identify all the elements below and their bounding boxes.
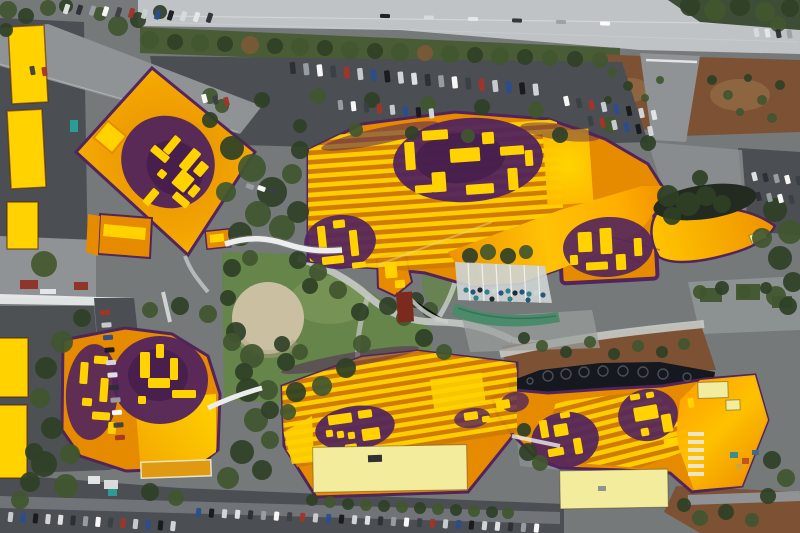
patio-table: [470, 289, 475, 294]
aerial-image: [0, 0, 800, 533]
tree: [302, 278, 318, 294]
car: [170, 521, 176, 531]
car: [363, 102, 369, 112]
car: [556, 20, 566, 24]
tree: [692, 510, 708, 526]
tree: [560, 346, 572, 358]
tree: [715, 281, 729, 295]
rooftop-unit: [570, 255, 579, 265]
car: [248, 510, 254, 519]
car: [468, 17, 478, 21]
tree: [18, 8, 34, 24]
patio-table: [507, 296, 512, 301]
patio-table: [512, 290, 517, 295]
roof-slat: [688, 464, 704, 468]
rooftop-unit: [348, 432, 356, 440]
pale-roof-section: [313, 445, 468, 493]
tree: [723, 90, 733, 100]
small-feature: [74, 282, 88, 290]
tree: [291, 38, 309, 56]
tree: [360, 499, 372, 511]
car: [404, 517, 410, 526]
rooftop-unit: [599, 228, 612, 255]
rooftop-unit: [450, 147, 481, 163]
rooftop-unit: [79, 362, 89, 385]
car: [45, 514, 51, 524]
tree: [744, 74, 752, 82]
tree: [707, 75, 717, 85]
car: [145, 519, 151, 529]
southeast-path: [688, 496, 800, 500]
roof-slat: [688, 448, 704, 452]
patio-table: [484, 289, 489, 294]
car: [378, 516, 384, 525]
tree: [752, 228, 772, 248]
tree: [678, 338, 690, 350]
tree: [450, 504, 462, 516]
rooftop-unit: [500, 145, 525, 156]
rooftop-unit: [156, 344, 164, 358]
tree: [245, 201, 271, 227]
rooftop-unit: [337, 431, 345, 439]
tree: [441, 45, 459, 63]
tree: [532, 455, 548, 471]
tree: [191, 34, 209, 52]
car: [7, 512, 13, 522]
tree: [108, 16, 128, 36]
patio-table: [525, 297, 530, 302]
satellite-map-view[interactable]: [0, 0, 800, 533]
rooftop-unit: [524, 150, 533, 167]
tree: [230, 440, 254, 464]
tree: [641, 94, 649, 102]
car: [196, 508, 202, 517]
rooftop-unit: [99, 378, 109, 402]
tree: [217, 36, 233, 52]
car: [339, 514, 345, 523]
tree: [518, 332, 530, 344]
tree: [171, 297, 189, 315]
rooftop-unit: [482, 132, 495, 145]
car: [82, 516, 88, 526]
tree: [640, 135, 656, 151]
tree: [254, 92, 270, 108]
rooftop-unit: [415, 184, 434, 193]
tree: [491, 47, 509, 65]
tree: [396, 501, 408, 513]
tree: [767, 113, 777, 123]
tree: [474, 99, 490, 115]
tree: [379, 297, 397, 315]
tree: [216, 182, 236, 202]
solar-roof-strip: [7, 109, 46, 189]
rooftop-unit: [634, 238, 643, 256]
tree: [607, 67, 617, 77]
tree: [267, 38, 283, 54]
rooftop-unit: [431, 172, 446, 193]
tree: [468, 505, 480, 517]
car: [95, 517, 101, 527]
car: [326, 514, 332, 523]
small-feature: [108, 489, 117, 496]
tree: [775, 80, 785, 90]
car: [389, 105, 395, 115]
tree: [280, 404, 296, 420]
small-feature: [40, 289, 56, 294]
tree: [220, 290, 236, 306]
tree: [35, 357, 57, 379]
car: [300, 513, 306, 522]
rooftop-unit: [172, 390, 196, 398]
tree: [763, 451, 781, 469]
small-feature: [598, 486, 606, 491]
tree: [40, 0, 56, 16]
tree: [500, 248, 516, 264]
car: [222, 509, 228, 518]
rooftop-unit: [466, 183, 495, 195]
patio-table: [473, 295, 478, 300]
car: [521, 523, 527, 532]
tree: [415, 329, 433, 347]
rooftop-unit: [640, 427, 649, 436]
car: [482, 521, 488, 530]
tree: [692, 170, 708, 186]
tree: [737, 285, 751, 299]
rooftop-unit: [553, 423, 569, 437]
tree: [41, 417, 63, 439]
tree: [632, 340, 644, 352]
diamond-east-hut-roof: [210, 233, 225, 242]
car: [376, 103, 382, 113]
tree: [405, 126, 419, 140]
car: [274, 511, 280, 520]
tree: [367, 43, 383, 59]
tree: [324, 496, 336, 508]
tree: [141, 483, 159, 501]
rooftop-unit: [82, 398, 93, 407]
tree: [517, 423, 531, 437]
tree: [432, 503, 444, 515]
tree: [167, 34, 183, 50]
tree: [745, 513, 759, 527]
tree: [736, 108, 744, 116]
patio-table: [540, 292, 545, 297]
rooftop-unit: [395, 280, 406, 289]
car: [115, 435, 125, 441]
tree: [310, 88, 326, 104]
car: [512, 18, 522, 22]
tree: [757, 95, 767, 105]
tree: [486, 506, 498, 518]
solar-roof-strip: [0, 405, 27, 478]
tree: [592, 52, 608, 68]
tree: [417, 45, 433, 61]
tree: [261, 431, 279, 449]
tree: [657, 185, 679, 207]
car: [443, 519, 449, 528]
small-feature: [20, 280, 38, 289]
tree: [436, 344, 452, 360]
tree: [623, 81, 633, 91]
tree: [252, 460, 272, 480]
car: [157, 520, 163, 530]
car: [534, 523, 540, 532]
tree: [567, 51, 583, 67]
tree: [656, 76, 664, 84]
tree: [414, 502, 426, 514]
tree: [341, 41, 359, 59]
patio-table: [491, 288, 496, 293]
tree: [768, 246, 792, 270]
small-feature: [368, 455, 382, 462]
tree: [467, 47, 483, 63]
car: [337, 100, 343, 110]
car: [428, 108, 434, 118]
rooftop-unit: [507, 168, 519, 191]
pale-roof-section: [560, 469, 669, 509]
car: [103, 335, 113, 341]
car: [456, 520, 462, 529]
car: [70, 515, 76, 525]
tree: [519, 245, 533, 259]
tree: [462, 248, 478, 264]
tree: [31, 451, 57, 477]
tree: [704, 0, 726, 21]
tree: [60, 444, 80, 464]
tree: [312, 376, 332, 396]
small-feature: [88, 476, 100, 484]
tree: [517, 49, 533, 65]
car: [313, 513, 319, 522]
tree: [608, 348, 620, 360]
tree: [287, 201, 309, 223]
rooftop-unit: [586, 261, 608, 270]
car: [113, 422, 123, 428]
rooftop-unit: [577, 232, 592, 253]
car: [106, 360, 116, 366]
rooftop-unit: [148, 378, 170, 388]
car: [495, 522, 501, 531]
roof-slat: [688, 432, 704, 436]
small-feature: [104, 480, 118, 489]
car: [110, 397, 120, 403]
tree: [73, 309, 91, 327]
tree: [349, 123, 363, 137]
tree: [480, 244, 496, 260]
pale-roof-section: [698, 381, 729, 398]
solar-roof-strip: [8, 25, 48, 104]
car: [402, 106, 408, 116]
tree: [223, 333, 241, 351]
tree: [677, 498, 691, 512]
tree: [274, 336, 290, 352]
roof-slat: [688, 472, 704, 476]
tree: [528, 102, 544, 118]
patio-table: [463, 287, 468, 292]
tree: [391, 43, 409, 61]
car: [209, 508, 215, 517]
car: [508, 522, 514, 531]
rooftop-unit: [482, 415, 491, 422]
rooftop-unit: [326, 430, 334, 438]
car: [101, 322, 111, 328]
tree: [286, 382, 306, 402]
car: [235, 510, 241, 519]
rooftop-unit: [361, 427, 380, 441]
small-feature: [730, 452, 738, 458]
rooftop-unit: [384, 262, 397, 279]
tree: [777, 469, 795, 487]
car: [100, 310, 110, 316]
car: [132, 519, 138, 529]
tree: [656, 346, 668, 358]
rooftop-unit: [138, 396, 146, 404]
tree: [238, 154, 266, 182]
tree: [202, 112, 218, 128]
roof-slat: [688, 456, 704, 460]
car: [57, 515, 63, 525]
tree: [760, 282, 772, 294]
small-feature: [742, 458, 749, 464]
small-feature: [70, 120, 78, 132]
tree: [317, 40, 333, 56]
tree: [329, 281, 347, 299]
rooftop-unit: [140, 352, 150, 378]
tree: [54, 474, 78, 498]
tree: [584, 336, 596, 348]
tree: [713, 195, 731, 213]
tree: [223, 259, 241, 277]
tree: [718, 504, 734, 520]
tree: [293, 119, 307, 133]
roof-slat: [688, 440, 704, 444]
patio-table: [533, 290, 538, 295]
car: [112, 410, 122, 416]
patio-table: [519, 289, 524, 294]
tree: [30, 388, 50, 408]
tree: [536, 340, 548, 352]
car: [415, 107, 421, 117]
car: [350, 101, 356, 111]
tree: [235, 363, 253, 381]
car: [261, 511, 267, 520]
tree: [220, 136, 244, 160]
patio-table: [489, 296, 494, 301]
tree: [292, 344, 308, 360]
tree: [306, 494, 318, 506]
car: [120, 518, 126, 528]
tree: [282, 164, 302, 184]
rooftop-unit: [404, 142, 416, 171]
tree: [289, 251, 307, 269]
patio-table: [526, 291, 531, 296]
rooftop-unit: [333, 219, 346, 228]
rooftop-unit: [170, 358, 178, 380]
tree: [351, 303, 369, 321]
car: [469, 520, 475, 529]
patio-table: [505, 288, 510, 293]
tree: [168, 490, 184, 506]
car: [430, 519, 436, 528]
patio-table: [498, 290, 503, 295]
rooftop-unit: [92, 411, 111, 420]
solar-roof-strip: [0, 338, 28, 397]
tree: [241, 36, 259, 54]
patio-table: [477, 287, 482, 292]
car: [424, 15, 434, 19]
tree: [242, 250, 258, 266]
car: [20, 512, 26, 522]
tree: [461, 129, 475, 143]
car: [109, 385, 119, 391]
car: [104, 347, 114, 353]
tree: [217, 467, 239, 489]
car: [391, 517, 397, 526]
tree: [779, 297, 797, 315]
tree: [277, 353, 295, 371]
pale-roof-section: [726, 400, 740, 410]
tree: [261, 401, 279, 419]
tree: [291, 141, 309, 159]
tree: [336, 358, 356, 378]
southwest-building-annex: [141, 460, 212, 478]
car: [417, 518, 423, 527]
car: [600, 21, 610, 25]
tree: [353, 335, 371, 353]
tree: [51, 331, 73, 353]
small-feature: [752, 450, 759, 455]
diamond-annex-wedge: [86, 214, 100, 256]
tree: [142, 302, 158, 318]
tree: [342, 498, 354, 510]
tree: [141, 31, 159, 49]
car: [107, 372, 117, 378]
rooftop-unit: [616, 254, 627, 271]
small-feature: [736, 464, 742, 469]
car: [352, 515, 358, 524]
tree: [760, 488, 776, 504]
red-structure: [396, 291, 414, 322]
loop-road-island: [31, 251, 57, 277]
car: [32, 513, 38, 523]
tree: [20, 472, 40, 492]
solar-roof-strip: [7, 202, 38, 249]
tree: [693, 285, 707, 299]
mound-highlight: [710, 79, 770, 111]
car: [287, 512, 293, 521]
tree: [199, 305, 217, 323]
car: [380, 14, 390, 18]
tree: [378, 500, 390, 512]
car: [107, 517, 113, 527]
tree: [696, 186, 716, 206]
rooftop-unit: [422, 129, 449, 141]
tree: [542, 50, 558, 66]
tree: [663, 207, 681, 225]
tree: [11, 491, 29, 509]
tree: [552, 127, 568, 143]
car: [365, 516, 371, 525]
tree: [502, 507, 514, 519]
